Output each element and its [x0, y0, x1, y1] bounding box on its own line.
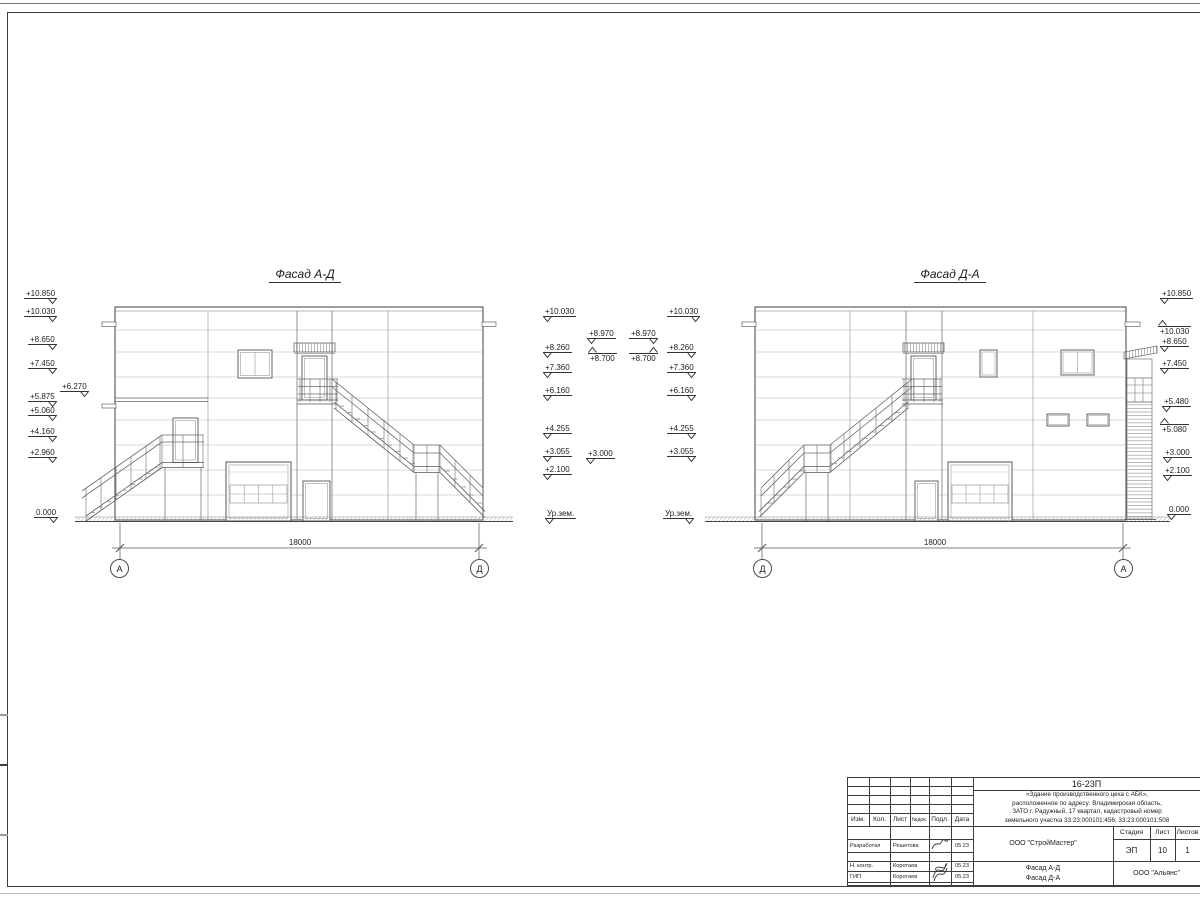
- elevation-tick-icon: [685, 518, 694, 524]
- elevation-mark: 0.000: [1167, 505, 1191, 515]
- elevation-tick-icon: [1163, 457, 1172, 463]
- elevation-mark: +4.255: [543, 424, 572, 434]
- elevation-mark: Ур.зем.: [663, 509, 694, 519]
- elevation-tick-icon: [691, 316, 700, 322]
- name-developer: Решетова: [891, 839, 931, 852]
- elevation-mark: +4.255: [667, 424, 696, 434]
- stage-value: ЭП: [1113, 839, 1150, 861]
- col-header-podp: Подл.: [929, 813, 951, 826]
- elevation-mark: 0.000: [34, 508, 58, 518]
- elevation-tick-icon: [1162, 406, 1171, 412]
- elevation-mark: +2.100: [543, 465, 572, 475]
- elevation-tick-icon: [649, 347, 658, 353]
- elevation-mark: +5.480: [1162, 397, 1191, 407]
- elevation-tick-icon: [649, 338, 658, 344]
- elevation-mark: +3.000: [586, 449, 615, 459]
- elevation-tick-icon: [543, 433, 552, 439]
- elevation-tick-icon: [543, 395, 552, 401]
- elevation-mark: +6.160: [667, 386, 696, 396]
- drawing-title: Фасад А-Д Фасад Д-А: [973, 864, 1113, 883]
- sheet-label: Лист: [1150, 826, 1175, 839]
- elevation-tick-icon: [48, 457, 57, 463]
- col-header-izm: Изм.: [847, 813, 869, 826]
- elevation-mark: +8.700: [588, 353, 617, 363]
- date-developer: 05.23: [951, 839, 973, 852]
- elevation-tick-icon: [687, 372, 696, 378]
- stage-label: Стадия: [1113, 826, 1150, 839]
- elevation-mark: +8.970: [587, 329, 616, 339]
- elevation-mark: +8.260: [667, 343, 696, 353]
- elevation-mark: +2.100: [1163, 466, 1192, 476]
- drawing-sheet: { "drawing": { "left_view": {"title": "Ф…: [0, 0, 1200, 900]
- elevation-mark: +8.650: [1160, 337, 1189, 347]
- role-ncontrol: Н. контр.: [848, 861, 892, 871]
- col-header-list: Лист: [890, 813, 910, 826]
- elevation-mark: +8.260: [543, 343, 572, 353]
- elevation-mark: +10.850: [1160, 289, 1193, 299]
- elevation-mark: +8.700: [629, 353, 658, 363]
- elevation-mark: +8.650: [28, 335, 57, 345]
- elevation-mark: +2.960: [28, 448, 57, 458]
- project-line: земельного участка 33:23:000101:456, 33:…: [977, 817, 1197, 826]
- elevation-tick-icon: [543, 372, 552, 378]
- elevation-mark: +10.030: [667, 307, 700, 317]
- elevation-tick-icon: [48, 298, 57, 304]
- project-line: «Здание производственного цеха с АБК»,: [977, 791, 1197, 800]
- org-designer: ООО "СтройМастер": [973, 826, 1113, 861]
- sheets-value: 1: [1175, 839, 1200, 861]
- elevation-tick-icon: [1160, 418, 1169, 424]
- elevation-tick-icon: [687, 352, 696, 358]
- name-ncontrol: Коротаев: [891, 861, 931, 871]
- elevation-mark: +4.160: [28, 427, 57, 437]
- elevation-tick-icon: [687, 456, 696, 462]
- elevation-tick-icon: [543, 316, 552, 322]
- elevation-tick-icon: [48, 344, 57, 350]
- elevation-marks-layer: +10.850 +10.030 +8.650 +7.450 +6.270: [0, 0, 1200, 900]
- elevation-tick-icon: [586, 458, 595, 464]
- elevation-tick-icon: [48, 316, 57, 322]
- elevation-mark: +10.030: [1158, 326, 1191, 336]
- elevation-mark: +5.060: [28, 406, 57, 416]
- project-description: «Здание производственного цеха с АБК», р…: [977, 791, 1197, 825]
- name-gip: Коротаев: [891, 871, 931, 882]
- elevation-tick-icon: [48, 415, 57, 421]
- elevation-mark: Ур.зем.: [545, 509, 576, 519]
- elevation-mark: +7.450: [1160, 359, 1189, 369]
- sheet-value: 10: [1150, 839, 1175, 861]
- elevation-tick-icon: [1167, 514, 1176, 520]
- elevation-tick-icon: [48, 436, 57, 442]
- elevation-mark: +3.055: [543, 447, 572, 457]
- elevation-tick-icon: [1160, 298, 1169, 304]
- date-ncontrol: 05.23: [951, 861, 973, 871]
- elevation-tick-icon: [545, 518, 554, 524]
- role-developer: Разработал: [848, 839, 892, 852]
- elevation-mark: +3.000: [1163, 448, 1192, 458]
- signature-developer: [930, 836, 950, 852]
- title-block: Изм. Кол. Лист №док. Подл. Дата Разработ…: [847, 777, 1200, 886]
- sheets-label: Листов: [1175, 826, 1200, 839]
- elevation-tick-icon: [80, 391, 89, 397]
- elevation-tick-icon: [1158, 320, 1167, 326]
- org-customer: ООО "Альянс": [1113, 861, 1200, 885]
- col-header-ndok: №док.: [910, 813, 929, 826]
- date-gip: 05.23: [951, 871, 973, 882]
- elevation-tick-icon: [48, 368, 57, 374]
- elevation-mark: +3.055: [667, 447, 696, 457]
- elevation-tick-icon: [687, 395, 696, 401]
- elevation-tick-icon: [587, 338, 596, 344]
- elevation-tick-icon: [1160, 368, 1169, 374]
- elevation-tick-icon: [543, 474, 552, 480]
- role-gip: ГИП: [848, 871, 892, 882]
- elevation-tick-icon: [1160, 346, 1169, 352]
- elevation-mark: +7.360: [543, 363, 572, 373]
- elevation-mark: +6.270: [60, 382, 89, 392]
- elevation-tick-icon: [49, 517, 58, 523]
- elevation-tick-icon: [687, 433, 696, 439]
- elevation-tick-icon: [1163, 475, 1172, 481]
- project-line: ЗАТО г. Радужный, 17 квартал, кадастровы…: [977, 808, 1197, 817]
- col-header-kol: Кол.: [869, 813, 890, 826]
- elevation-mark: +8.970: [629, 329, 658, 339]
- elevation-tick-icon: [543, 456, 552, 462]
- elevation-mark: +10.030: [543, 307, 576, 317]
- elevation-mark: +5.875: [28, 392, 57, 402]
- signature-korotaev: [930, 858, 950, 884]
- elevation-mark: +7.360: [667, 363, 696, 373]
- doc-number: 16-23П: [973, 777, 1200, 790]
- elevation-mark: +10.850: [24, 289, 57, 299]
- project-line: расположенное по адресу: Владимирская об…: [977, 800, 1197, 809]
- elevation-mark: +6.160: [543, 386, 572, 396]
- elevation-mark: +7.450: [28, 359, 57, 369]
- col-header-data: Дата: [951, 813, 973, 826]
- elevation-mark: +10.030: [24, 307, 57, 317]
- elevation-tick-icon: [543, 352, 552, 358]
- elevation-tick-icon: [588, 347, 597, 353]
- elevation-mark: +5.080: [1160, 424, 1189, 434]
